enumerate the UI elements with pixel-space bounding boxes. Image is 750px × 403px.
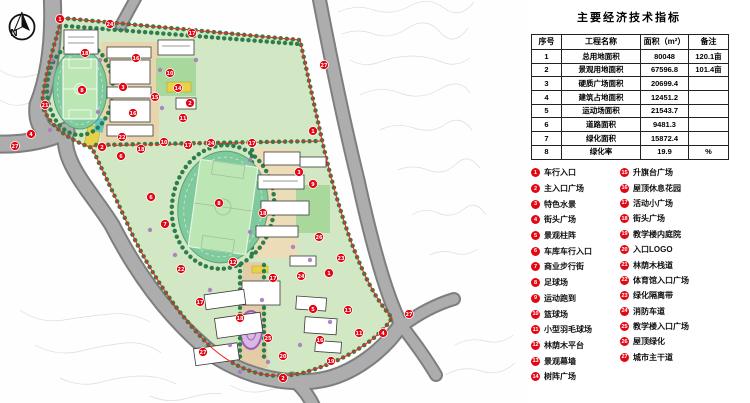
- svg-text:22: 22: [178, 267, 185, 273]
- map-marker: 27: [11, 142, 20, 151]
- cell-name: 绿化率: [562, 145, 641, 159]
- legend-number-badge: 3: [531, 200, 540, 209]
- legend-item: 1 车行入口: [531, 165, 620, 181]
- svg-text:17: 17: [270, 276, 277, 282]
- map-marker: 9: [309, 180, 318, 189]
- map-marker: 18: [236, 314, 245, 323]
- map-marker: 20: [279, 352, 288, 361]
- svg-text:10: 10: [167, 71, 174, 77]
- svg-text:3: 3: [121, 85, 125, 91]
- legend-item: 23 绿化隔离带: [620, 288, 750, 303]
- svg-text:27: 27: [200, 350, 207, 356]
- legend-number-badge: 19: [620, 230, 629, 239]
- svg-text:18: 18: [82, 51, 89, 57]
- table-header-cell: 工程名称: [562, 35, 641, 50]
- legend-label: 树阵广场: [544, 371, 576, 382]
- map-marker: 16: [132, 54, 141, 63]
- legend-number-badge: 11: [531, 325, 540, 334]
- svg-text:23: 23: [338, 256, 345, 262]
- legend-item: 22 体育馆入口广场: [620, 273, 750, 288]
- map-marker: 13: [344, 306, 353, 315]
- map-marker: 4: [27, 130, 36, 139]
- svg-text:9: 9: [311, 182, 315, 188]
- svg-text:27: 27: [406, 312, 413, 318]
- table-row: 1 总用地面积 80048 120.1亩: [532, 50, 729, 64]
- cell-area: 67596.8: [641, 63, 689, 77]
- legend-label: 足球场: [544, 277, 568, 288]
- cell-index: 7: [532, 132, 562, 146]
- svg-text:27: 27: [321, 63, 328, 69]
- cell-remark: [689, 91, 729, 105]
- cell-area: 19.9: [641, 145, 689, 159]
- legend-label: 入口LOGO: [633, 244, 673, 255]
- svg-text:14: 14: [175, 86, 182, 92]
- svg-text:10: 10: [161, 140, 168, 146]
- legend-number-badge: 4: [531, 215, 540, 224]
- svg-text:11: 11: [356, 331, 363, 337]
- cell-index: 4: [532, 91, 562, 105]
- legend-item: 16 屋顶休息花园: [620, 180, 750, 195]
- map-marker: 17: [188, 29, 197, 38]
- map-marker: 17: [196, 298, 205, 307]
- legend-number-badge: 6: [531, 247, 540, 256]
- svg-text:1: 1: [311, 129, 315, 135]
- legend-number-badge: 24: [620, 307, 629, 316]
- table-header-cell: 序号: [532, 35, 562, 50]
- map-marker: 7: [161, 220, 170, 229]
- legend-item: 13 景观幕墙: [531, 353, 620, 369]
- legend-number-badge: 12: [531, 341, 540, 350]
- legend-item: 7 商业步行街: [531, 259, 620, 275]
- map-marker: 27: [405, 310, 414, 319]
- svg-text:6: 6: [119, 154, 123, 160]
- svg-text:24: 24: [298, 274, 305, 280]
- legend-item: 9 运动跑到: [531, 291, 620, 307]
- table-header-row: 序号工程名称面积（m²）备注: [532, 35, 729, 50]
- legend-label: 教学楼内庭院: [633, 229, 681, 240]
- svg-text:1: 1: [58, 17, 62, 23]
- cell-name: 运动场面积: [562, 104, 641, 118]
- map-marker: 15: [151, 93, 160, 102]
- legend-label: 屋顶休息花园: [633, 183, 681, 194]
- legend-item: 20 入口LOGO: [620, 242, 750, 257]
- cell-name: 道路面积: [562, 118, 641, 132]
- site-plan-sheet: N 12417271816103814152211611142210172417…: [0, 0, 750, 403]
- legend-label: 升旗台广场: [633, 167, 673, 178]
- table-row: 6 道路面积 9481.3: [532, 118, 729, 132]
- map-marker: 10: [166, 69, 175, 78]
- legend-label: 景观柱阵: [544, 230, 576, 241]
- map-marker: 27: [199, 348, 208, 357]
- map-marker: 18: [259, 209, 268, 218]
- legend-label: 林荫木平台: [544, 340, 584, 351]
- map-marker: 2: [98, 143, 107, 152]
- legend-number-badge: 21: [620, 261, 629, 270]
- map-marker: 21: [41, 101, 50, 110]
- table-row: 3 硬质广场面积 20699.4: [532, 77, 729, 91]
- svg-text:8: 8: [80, 88, 84, 94]
- svg-text:2: 2: [188, 101, 192, 107]
- cell-area: 9481.3: [641, 118, 689, 132]
- legend-label: 消防车道: [633, 306, 665, 317]
- table-row: 4 建筑占地面积 12451.2: [532, 91, 729, 105]
- svg-text:18: 18: [237, 316, 244, 322]
- legend-number-badge: 16: [620, 184, 629, 193]
- map-marker: 17: [269, 274, 278, 283]
- map-marker: 2: [279, 374, 288, 383]
- svg-text:11: 11: [180, 116, 187, 122]
- map-marker: 6: [117, 152, 126, 161]
- map-marker: 24: [297, 272, 306, 281]
- svg-text:17: 17: [185, 143, 192, 149]
- svg-text:2: 2: [100, 145, 104, 151]
- legend-item: 8 足球场: [531, 275, 620, 291]
- legend-number-badge: 22: [620, 276, 629, 285]
- map-marker: 11: [355, 329, 364, 338]
- legend: 1 车行入口 2 主入口广场 3 特色水景 4: [531, 165, 750, 385]
- svg-text:22: 22: [119, 135, 126, 141]
- legend-item: 18 街头广场: [620, 211, 750, 226]
- table-row: 8 绿化率 19.9 %: [532, 145, 729, 159]
- legend-label: 篮球场: [544, 309, 568, 320]
- map-marker: 1: [309, 127, 318, 136]
- legend-number-badge: 20: [620, 245, 629, 254]
- map-marker: 23: [337, 254, 346, 263]
- cell-area: 15872.4: [641, 132, 689, 146]
- table-header-cell: 面积（m²）: [641, 35, 689, 50]
- cell-index: 2: [532, 63, 562, 77]
- map-marker: 16: [316, 336, 325, 345]
- svg-text:5: 5: [311, 307, 315, 313]
- svg-text:20: 20: [280, 354, 287, 360]
- legend-label: 主入口广场: [544, 183, 584, 194]
- legend-label: 体育馆入口广场: [633, 275, 689, 286]
- svg-text:17: 17: [189, 31, 196, 37]
- cell-index: 5: [532, 104, 562, 118]
- map-marker: 5: [309, 305, 318, 314]
- svg-text:16: 16: [317, 338, 324, 344]
- north-arrow-label: N: [10, 28, 17, 39]
- legend-label: 屋顶绿化: [633, 336, 665, 347]
- legend-number-badge: 2: [531, 184, 540, 193]
- legend-number-badge: 1: [531, 168, 540, 177]
- legend-item: 12 林荫木平台: [531, 338, 620, 354]
- map-marker: 19: [327, 357, 336, 366]
- legend-item: 27 城市主干道: [620, 350, 750, 365]
- svg-text:18: 18: [260, 211, 267, 217]
- svg-text:12: 12: [230, 260, 237, 266]
- svg-text:2: 2: [281, 376, 285, 382]
- cell-name: 建筑占地面积: [562, 91, 641, 105]
- legend-label: 林荫木栈道: [633, 260, 673, 271]
- map-marker: 14: [174, 84, 183, 93]
- map-marker: 4: [379, 329, 388, 338]
- map-marker: 24: [106, 20, 115, 29]
- legend-item: 25 教学楼入口广场: [620, 319, 750, 334]
- legend-number-badge: 5: [531, 231, 540, 240]
- svg-text:16: 16: [133, 56, 140, 62]
- legend-label: 商业步行街: [544, 261, 584, 272]
- legend-item: 11 小型羽毛球场: [531, 322, 620, 338]
- cell-index: 8: [532, 145, 562, 159]
- map-marker: 22: [177, 265, 186, 274]
- cell-remark: [689, 118, 729, 132]
- legend-column-right: 15 升旗台广场 16 屋顶休息花园 17 活动小广场 18: [620, 165, 750, 385]
- legend-column-left: 1 车行入口 2 主入口广场 3 特色水景 4: [531, 165, 620, 385]
- legend-item: 3 特色水景: [531, 196, 620, 212]
- legend-number-badge: 17: [620, 199, 629, 208]
- map-marker: 1: [56, 15, 65, 24]
- cell-area: 20699.4: [641, 77, 689, 91]
- map-marker: 22: [118, 133, 127, 142]
- legend-item: 15 升旗台广场: [620, 165, 750, 180]
- cell-index: 1: [532, 50, 562, 64]
- legend-label: 街头广场: [633, 213, 665, 224]
- legend-item: 17 活动小广场: [620, 196, 750, 211]
- table-row: 2 景观用地面积 67596.8 101.4亩: [532, 63, 729, 77]
- master-plan-map: N 12417271816103814152211611142210172417…: [0, 0, 530, 403]
- legend-number-badge: 14: [531, 372, 540, 381]
- map-marker: 18: [137, 145, 146, 154]
- map-marker: 11: [179, 114, 188, 123]
- legend-number-badge: 10: [531, 310, 540, 319]
- cell-remark: 120.1亩: [689, 50, 729, 64]
- map-marker: 2: [186, 99, 195, 108]
- svg-text:21: 21: [42, 103, 49, 109]
- legend-label: 绿化隔离带: [633, 290, 673, 301]
- map-marker: 25: [264, 334, 273, 343]
- map-marker: 27: [320, 61, 329, 70]
- svg-text:26: 26: [316, 235, 323, 241]
- cell-remark: 101.4亩: [689, 63, 729, 77]
- legend-label: 景观幕墙: [544, 356, 576, 367]
- svg-text:17: 17: [197, 300, 204, 306]
- table-title: 主要经济技术指标: [528, 9, 730, 25]
- cell-name: 景观用地面积: [562, 63, 641, 77]
- svg-text:17: 17: [249, 141, 256, 147]
- svg-text:13: 13: [345, 308, 352, 314]
- cell-remark: [689, 77, 729, 91]
- map-marker: 3: [119, 83, 128, 92]
- svg-text:19: 19: [328, 359, 335, 365]
- legend-label: 运动跑到: [544, 293, 576, 304]
- table-header-cell: 备注: [689, 35, 729, 50]
- map-marker: 3: [295, 168, 304, 177]
- map-marker: 8: [215, 199, 224, 208]
- cell-index: 3: [532, 77, 562, 91]
- map-marker: 17: [184, 141, 193, 150]
- legend-number-badge: 8: [531, 278, 540, 287]
- legend-label: 特色水景: [544, 199, 576, 210]
- cell-name: 绿化面积: [562, 132, 641, 146]
- map-marker: 8: [78, 86, 87, 95]
- indicators-table: 序号工程名称面积（m²）备注 1 总用地面积 80048 120.1亩 2 景观…: [531, 34, 729, 160]
- cell-area: 80048: [641, 50, 689, 64]
- svg-text:27: 27: [12, 144, 19, 150]
- legend-number-badge: 27: [620, 353, 629, 362]
- legend-number-badge: 13: [531, 357, 540, 366]
- map-marker: 6: [147, 193, 156, 202]
- legend-label: 车库车行入口: [544, 246, 592, 257]
- legend-item: 21 林荫木栈道: [620, 257, 750, 272]
- legend-label: 街头广场: [544, 214, 576, 225]
- cell-remark: [689, 104, 729, 118]
- info-panel: 主要经济技术指标 序号工程名称面积（m²）备注 1 总用地面积 80048 12…: [528, 0, 750, 403]
- cell-remark: [689, 132, 729, 146]
- legend-label: 车行入口: [544, 167, 576, 178]
- cell-name: 硬质广场面积: [562, 77, 641, 91]
- legend-item: 24 消防车道: [620, 304, 750, 319]
- cell-index: 6: [532, 118, 562, 132]
- svg-text:1: 1: [327, 271, 331, 277]
- svg-text:4: 4: [381, 331, 385, 337]
- legend-item: 14 树阵广场: [531, 369, 620, 385]
- legend-item: 26 屋顶绿化: [620, 334, 750, 349]
- legend-number-badge: 9: [531, 294, 540, 303]
- cell-name: 总用地面积: [562, 50, 641, 64]
- table-row: 5 运动场面积 21543.7: [532, 104, 729, 118]
- legend-number-badge: 18: [620, 214, 629, 223]
- legend-number-badge: 25: [620, 322, 629, 331]
- map-marker: 17: [248, 139, 257, 148]
- legend-label: 教学楼入口广场: [633, 321, 689, 332]
- legend-label: 小型羽毛球场: [544, 324, 592, 335]
- legend-label: 城市主干道: [633, 352, 673, 363]
- map-marker: 10: [160, 138, 169, 147]
- map-marker: 18: [81, 49, 90, 58]
- svg-text:6: 6: [149, 195, 153, 201]
- legend-item: 6 车库车行入口: [531, 243, 620, 259]
- svg-text:25: 25: [265, 336, 272, 342]
- legend-number-badge: 15: [620, 168, 629, 177]
- legend-number-badge: 7: [531, 262, 540, 271]
- table-row: 7 绿化面积 15872.4: [532, 132, 729, 146]
- legend-label: 活动小广场: [633, 198, 673, 209]
- legend-item: 5 景观柱阵: [531, 228, 620, 244]
- cell-area: 21543.7: [641, 104, 689, 118]
- svg-text:4: 4: [29, 132, 33, 138]
- cell-remark: %: [689, 145, 729, 159]
- map-marker: 26: [315, 233, 324, 242]
- svg-text:24: 24: [208, 141, 215, 147]
- map-marker: 1: [325, 269, 334, 278]
- svg-text:18: 18: [138, 147, 145, 153]
- svg-text:16: 16: [130, 111, 137, 117]
- cell-area: 12451.2: [641, 91, 689, 105]
- map-marker: 12: [229, 258, 238, 267]
- svg-text:3: 3: [297, 170, 301, 176]
- legend-item: 10 篮球场: [531, 306, 620, 322]
- legend-item: 19 教学楼内庭院: [620, 227, 750, 242]
- legend-item: 4 街头广场: [531, 212, 620, 228]
- legend-number-badge: 23: [620, 291, 629, 300]
- svg-text:7: 7: [163, 222, 167, 228]
- legend-number-badge: 26: [620, 337, 629, 346]
- svg-text:24: 24: [107, 22, 114, 28]
- map-marker: 24: [207, 139, 216, 148]
- svg-text:8: 8: [217, 201, 221, 207]
- map-marker: 16: [129, 109, 138, 118]
- svg-text:15: 15: [152, 95, 159, 101]
- legend-item: 2 主入口广场: [531, 181, 620, 197]
